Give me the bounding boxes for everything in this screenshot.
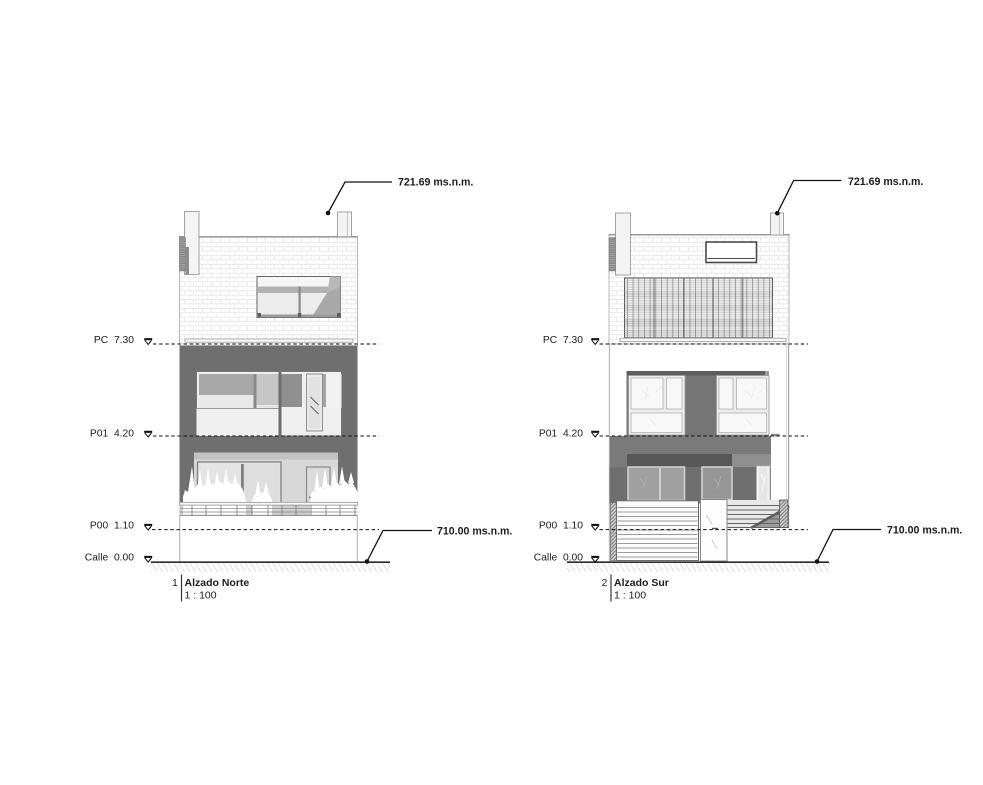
svg-text:P00 1.10: P00 1.10	[539, 521, 583, 532]
svg-text:1: 1	[172, 577, 178, 589]
svg-text:PC 7.30: PC 7.30	[94, 335, 134, 346]
svg-text:710.00 ms.n.m.: 710.00 ms.n.m.	[887, 524, 962, 536]
svg-text:PC 7.30: PC 7.30	[543, 335, 583, 346]
svg-text:Calle 0.00: Calle 0.00	[85, 552, 135, 563]
svg-text:Calle 0.00: Calle 0.00	[534, 552, 584, 563]
svg-text:710.00 ms.n.m.: 710.00 ms.n.m.	[437, 525, 512, 537]
svg-text:P01 4.20: P01 4.20	[90, 428, 134, 439]
svg-text:P00 1.10: P00 1.10	[90, 521, 134, 532]
svg-text:Alzado Norte: Alzado Norte	[185, 577, 250, 589]
svg-text:721.69 ms.n.m.: 721.69 ms.n.m.	[848, 176, 923, 188]
svg-text:P01 4.20: P01 4.20	[539, 428, 583, 439]
svg-text:1 : 100: 1 : 100	[614, 590, 646, 602]
svg-text:721.69 ms.n.m.: 721.69 ms.n.m.	[398, 177, 473, 189]
svg-text:2: 2	[602, 577, 608, 589]
svg-text:Alzado Sur: Alzado Sur	[614, 577, 669, 589]
svg-text:1 : 100: 1 : 100	[185, 590, 217, 602]
